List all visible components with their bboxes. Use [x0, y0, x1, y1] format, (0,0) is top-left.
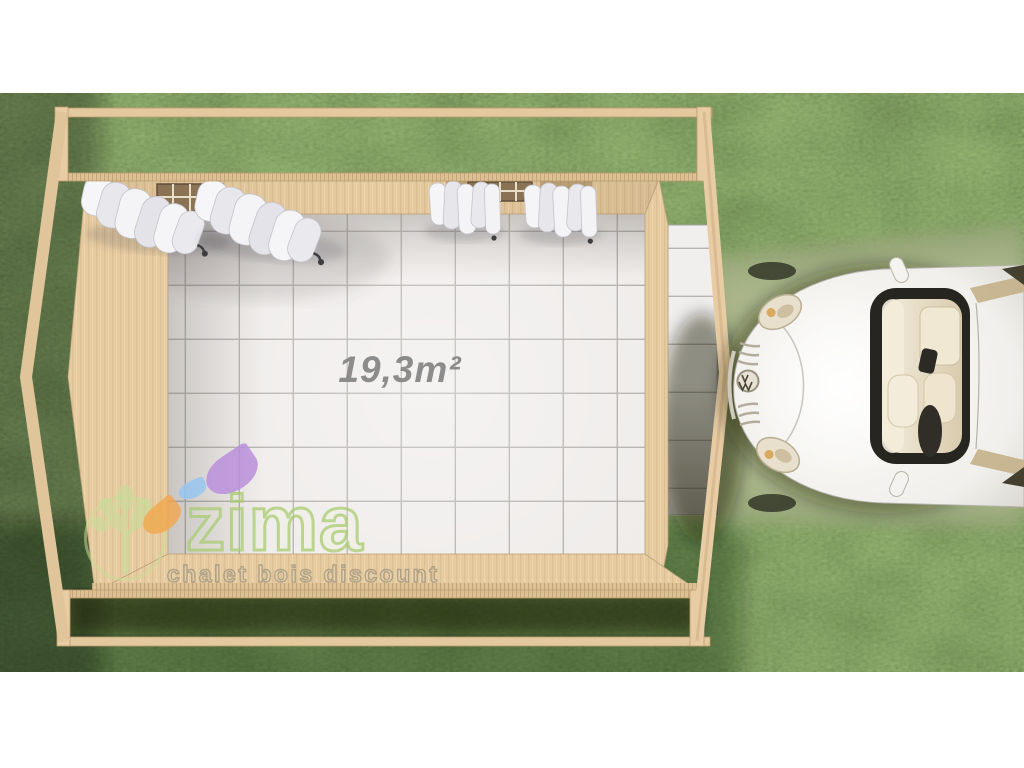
front-tire-right — [748, 494, 796, 512]
front-seat-left — [888, 375, 918, 427]
floor-area-label: 19,3m² — [300, 349, 500, 391]
frame-beam-bottom-inner — [62, 590, 705, 598]
frame-beam-top-inner — [62, 173, 709, 181]
curtain-bundle-3 — [425, 181, 505, 242]
scene-canvas — [0, 93, 1024, 672]
frame-beam-top-outer — [56, 108, 712, 117]
product-render-image: 19,3m² zima chalet bois discount — [0, 0, 1024, 768]
front-tire-left — [748, 262, 796, 280]
wall-right — [645, 179, 668, 592]
render-photo-area — [0, 93, 1024, 672]
vw-badge-icon — [738, 371, 759, 392]
curtain-bundle-4 — [520, 183, 602, 246]
frame-beam-bottom-outer — [62, 637, 710, 646]
steering-wheel — [918, 405, 942, 457]
